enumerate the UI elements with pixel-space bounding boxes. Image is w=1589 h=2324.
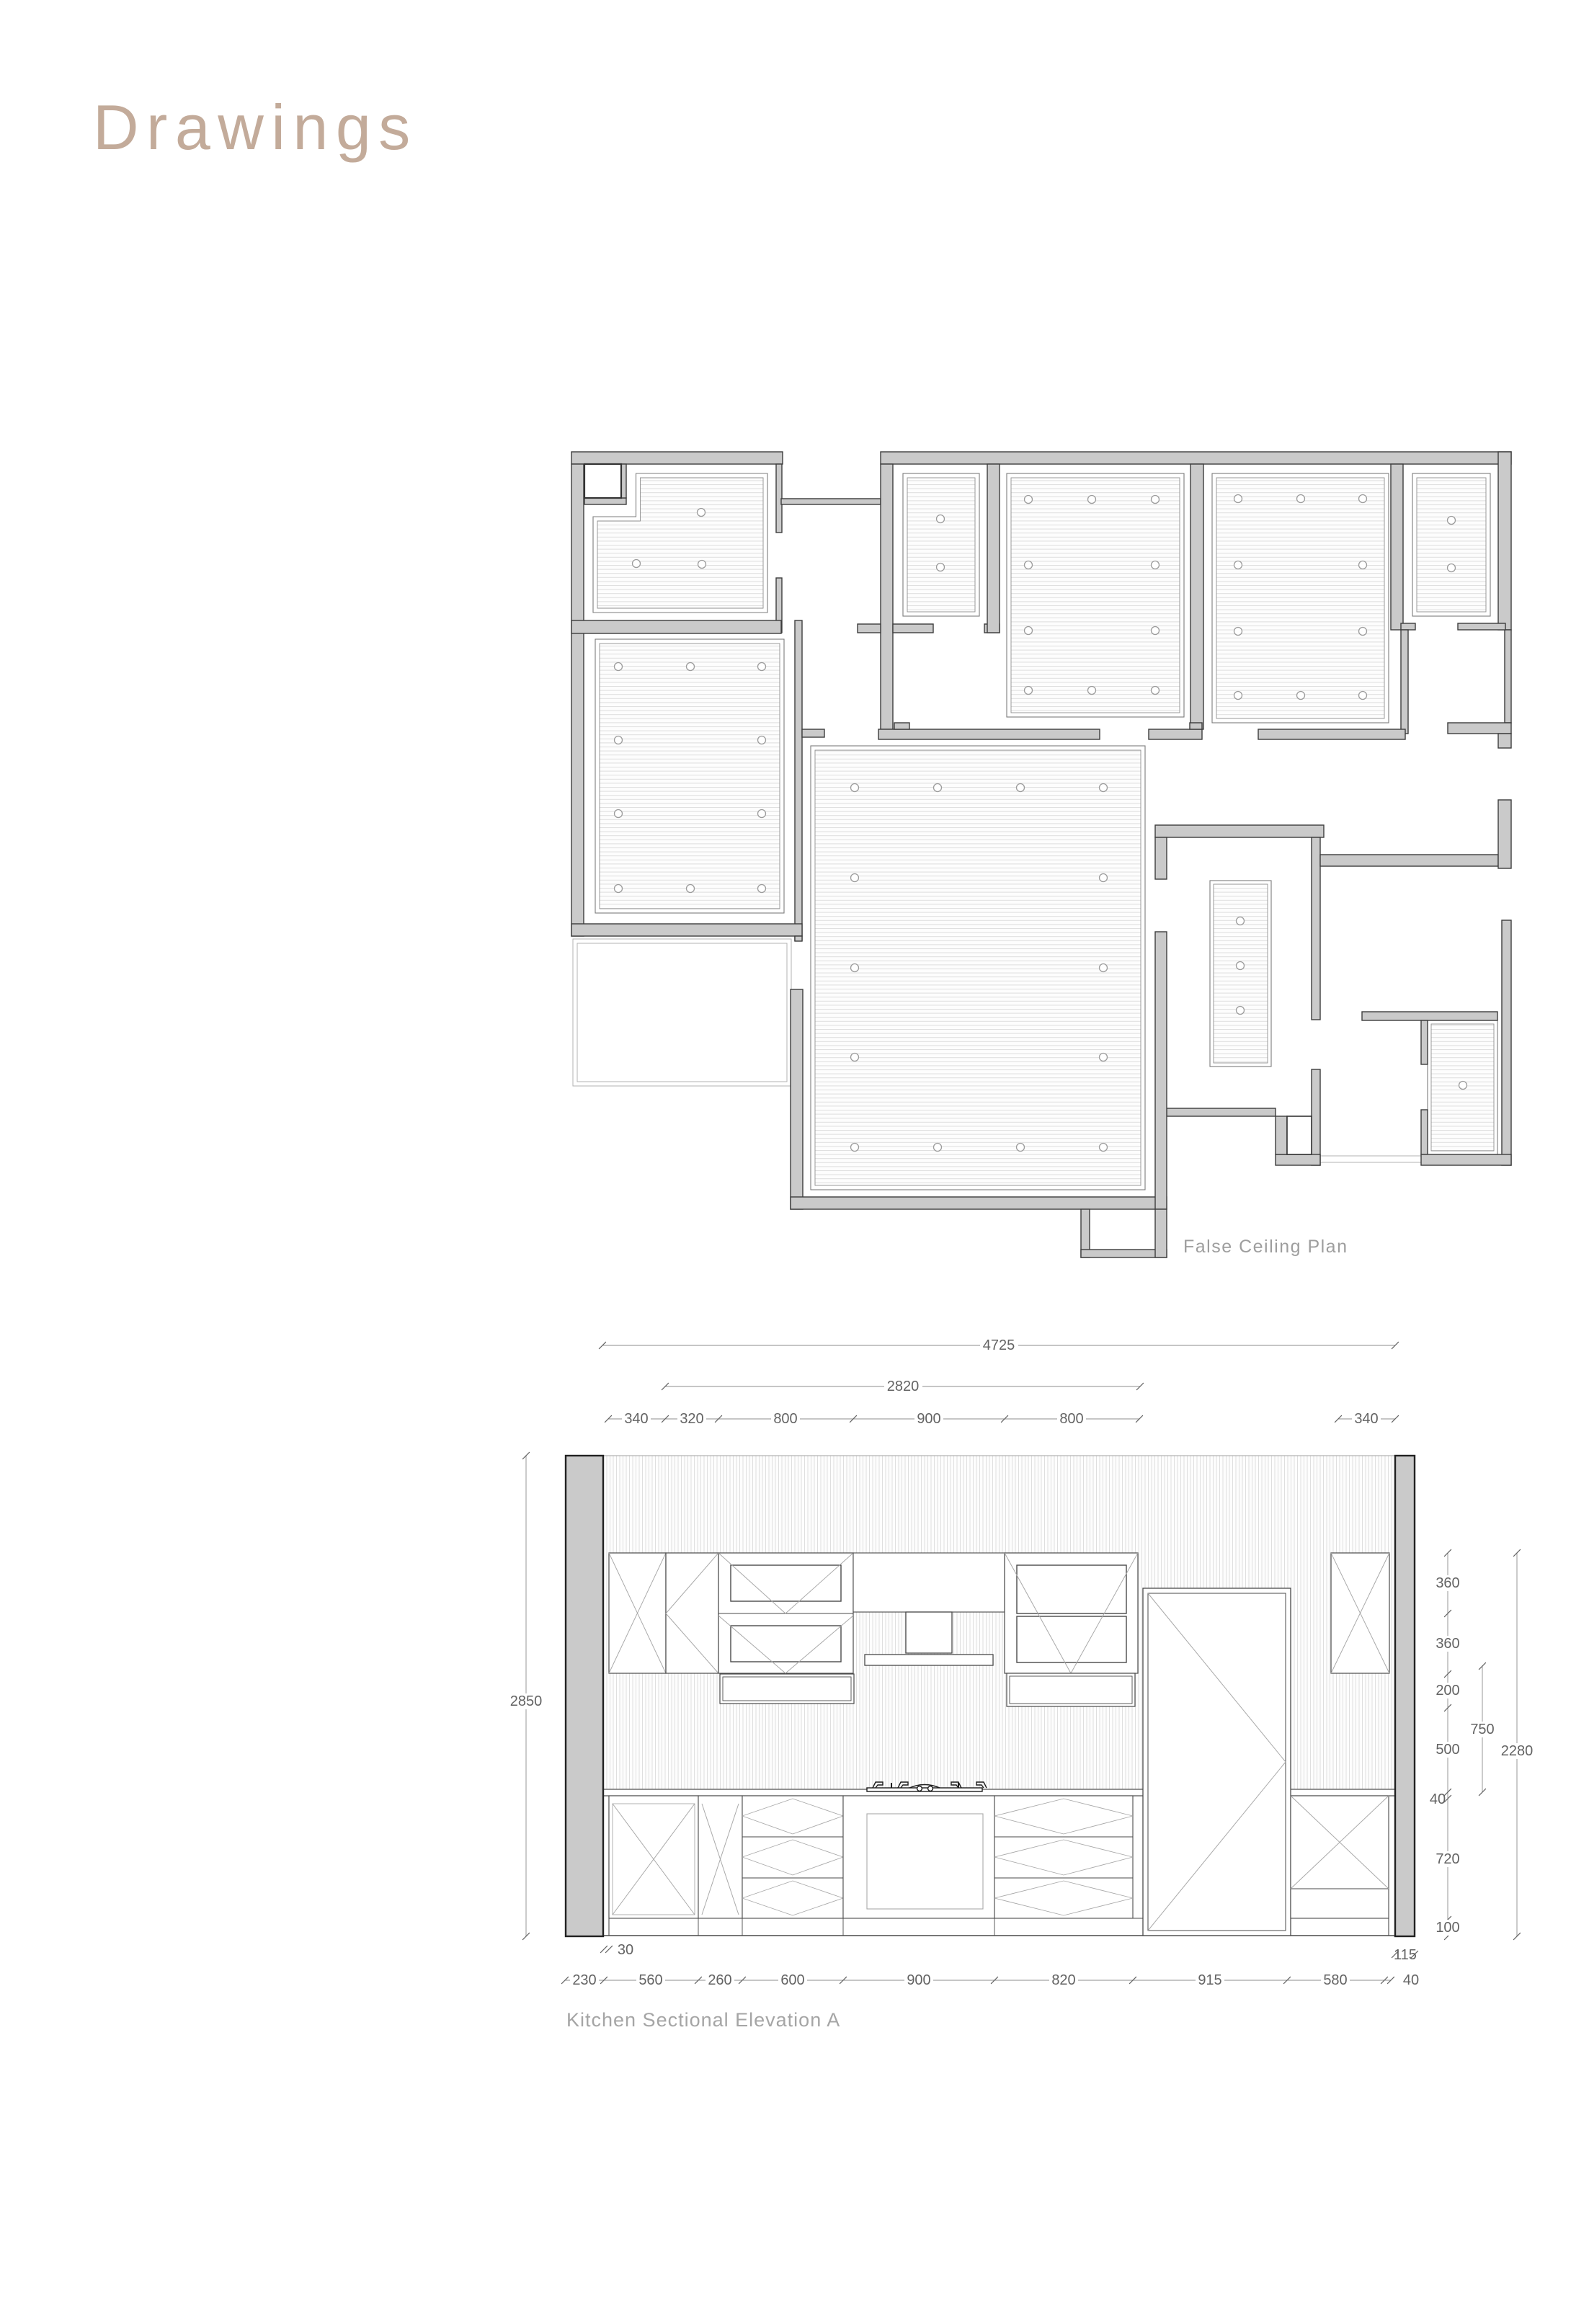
svg-text:100: 100 [1436,1920,1459,1936]
svg-text:750: 750 [1470,1722,1494,1737]
svg-text:340: 340 [624,1411,648,1427]
svg-text:500: 500 [1436,1742,1459,1758]
svg-text:30: 30 [618,1942,633,1958]
svg-text:580: 580 [1323,1972,1347,1988]
svg-text:360: 360 [1436,1575,1459,1591]
svg-text:Drawings: Drawings [93,92,418,163]
svg-text:900: 900 [917,1411,940,1427]
svg-text:800: 800 [1059,1411,1083,1427]
svg-text:40: 40 [1430,1791,1446,1807]
svg-text:4725: 4725 [983,1337,1015,1353]
svg-text:340: 340 [1354,1411,1378,1427]
svg-text:2850: 2850 [510,1693,543,1709]
svg-text:230: 230 [572,1972,596,1988]
svg-text:900: 900 [907,1972,930,1988]
svg-text:600: 600 [780,1972,804,1988]
svg-text:320: 320 [680,1411,703,1427]
svg-text:200: 200 [1436,1683,1459,1699]
svg-text:560: 560 [638,1972,662,1988]
svg-text:800: 800 [773,1411,797,1427]
svg-text:915: 915 [1198,1972,1221,1988]
svg-text:260: 260 [708,1972,731,1988]
svg-text:115: 115 [1394,1947,1417,1963]
svg-text:360: 360 [1436,1636,1459,1652]
svg-text:820: 820 [1051,1972,1075,1988]
svg-text:False Ceiling Plan: False Ceiling Plan [1183,1237,1348,1257]
svg-text:720: 720 [1436,1851,1459,1867]
svg-text:40: 40 [1403,1972,1419,1988]
svg-text:2820: 2820 [887,1379,920,1394]
svg-text:Kitchen Sectional Elevation A: Kitchen Sectional Elevation A [566,2009,840,2031]
svg-text:2280: 2280 [1501,1743,1534,1759]
